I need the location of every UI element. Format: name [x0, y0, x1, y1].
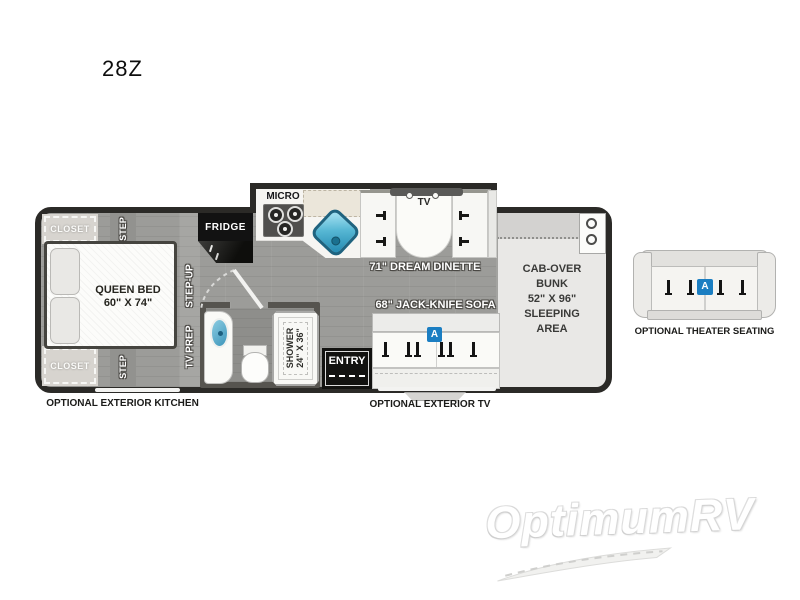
- watermark: OptimumRV: [485, 487, 798, 588]
- step-bottom: STEP: [110, 346, 136, 387]
- seatbelt-icon: [689, 280, 692, 293]
- fridge-label: FRIDGE: [205, 222, 246, 233]
- optional-exterior-kitchen-label: OPTIONAL EXTERIOR KITCHEN: [35, 398, 210, 409]
- stove-icon: [263, 204, 304, 237]
- cup-holder-icon: [586, 218, 597, 229]
- sofa-option-badge: A: [427, 327, 442, 342]
- cab-label-line: 52" X 96": [498, 292, 606, 307]
- microwave-label: MICRO: [258, 191, 308, 202]
- seatbelt-icon: [376, 214, 386, 217]
- seatbelt-icon: [449, 342, 452, 355]
- model-number: 28Z: [102, 56, 143, 82]
- bathroom-door-swing-icon: [190, 260, 275, 314]
- pillow: [50, 248, 80, 295]
- bathroom-sink-icon: [210, 318, 229, 348]
- exterior-kitchen-hatch: [95, 388, 180, 392]
- closet-bottom: CLOSET: [42, 346, 98, 386]
- tv-label: TV: [396, 197, 452, 208]
- seatbelt-icon: [384, 342, 387, 355]
- entry-label: ENTRY: [322, 355, 372, 367]
- sofa-footrest: [372, 368, 500, 389]
- toilet-icon: [241, 352, 269, 383]
- dinette-bench-left: [360, 190, 396, 258]
- shower-line2: 24" X 36": [295, 328, 305, 369]
- floorplan-page: 28Z CAB-OVER BUNK 52" X 96" SLEEPING ARE…: [0, 0, 800, 600]
- seatbelt-icon: [719, 280, 722, 293]
- exterior-tv-hatch: [378, 387, 496, 391]
- closet-top: CLOSET: [42, 214, 98, 244]
- seatbelt-icon: [741, 280, 744, 293]
- shower-label: SHOWER 24" X 36": [285, 328, 305, 369]
- seatbelt-icon: [376, 240, 386, 243]
- queen-bed-line1: QUEEN BED: [86, 284, 170, 297]
- queen-bed-line2: 60" X 74": [86, 297, 170, 310]
- tv-icon: [390, 188, 463, 196]
- seatbelt-icon: [459, 214, 469, 217]
- theater-armrest-left: [633, 252, 652, 318]
- seatbelt-icon: [667, 280, 670, 293]
- burner-icon: [287, 206, 303, 222]
- theater-footrest: [647, 310, 762, 320]
- tv-prep-label: TV PREP: [185, 326, 196, 369]
- cab-label-line: SLEEPING: [498, 307, 606, 322]
- dinette-label: 71" DREAM DINETTE: [350, 261, 500, 273]
- seatbelt-icon: [472, 342, 475, 355]
- fridge: FRIDGE: [198, 213, 253, 241]
- cab-label-line: CAB-OVER: [498, 262, 606, 277]
- cab-label-line: AREA: [498, 322, 606, 337]
- burner-icon: [277, 221, 293, 237]
- cab-over-bunk-label: CAB-OVER BUNK 52" X 96" SLEEPING AREA: [498, 262, 606, 337]
- cab-label-line: BUNK: [498, 277, 606, 292]
- step-label: STEP: [118, 355, 128, 379]
- cab-corner-console: [579, 213, 606, 254]
- entry-door: ENTRY: [322, 348, 372, 389]
- closet-label: CLOSET: [50, 224, 90, 234]
- queen-bed-label: QUEEN BED 60" X 74": [86, 284, 170, 310]
- theater-armrest-right: [757, 252, 776, 318]
- step-label: STEP: [118, 217, 128, 241]
- optional-theater-seating: A OPTIONAL THEATER SEATING: [633, 248, 776, 344]
- cup-holder-icon: [586, 234, 597, 245]
- closet-label: CLOSET: [50, 361, 90, 371]
- theater-option-badge: A: [697, 279, 713, 295]
- optional-exterior-tv-label: OPTIONAL EXTERIOR TV: [350, 399, 510, 410]
- seatbelt-icon: [440, 342, 443, 355]
- seatbelt-icon: [416, 342, 419, 355]
- dinette-bench-right: [452, 190, 488, 258]
- shower-line1: SHOWER: [285, 328, 295, 369]
- sofa-label: 68" JACK-KNIFE SOFA: [358, 299, 513, 311]
- pillow: [50, 297, 80, 344]
- watermark-road-icon: [490, 538, 691, 585]
- seatbelt-icon: [459, 240, 469, 243]
- optional-theater-seating-label: OPTIONAL THEATER SEATING: [627, 326, 782, 337]
- seatbelt-icon: [407, 342, 410, 355]
- dinette-side-strip: [488, 190, 497, 258]
